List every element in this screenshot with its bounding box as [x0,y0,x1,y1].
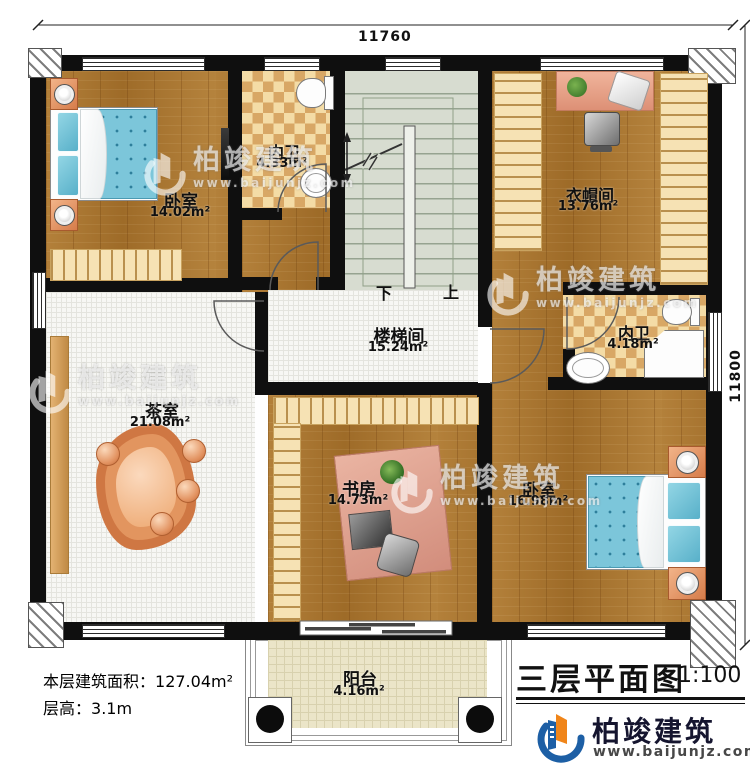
sink-icon [566,352,610,384]
dressing-table [556,71,654,111]
title-underline-thin [516,703,745,704]
room-area-bath2: 4.18m² [607,337,658,352]
wall-tearoom-hall [255,292,268,385]
window-top-cloakroom [540,57,664,71]
column-circle-icon [256,705,284,733]
pillow-icon [667,482,701,520]
wardrobe-cloakroom-right [660,73,708,285]
stool-icon [182,439,206,463]
pillow-icon [57,155,79,196]
plant-icon [567,77,587,97]
nightstand [668,446,706,478]
corridor-floor [492,282,563,390]
floor-plan-canvas: 11760 11800 卧室 14.02m² 内卫 4.33m² 楼梯间 15.… [0,0,750,778]
pillow-icon [57,112,79,152]
dimension-right: 11800 [728,346,744,406]
lamp-icon [676,572,699,595]
bed-bedroom2 [586,474,706,570]
floor-height-value: 3.1m [91,699,132,718]
mirror-stand-icon [590,146,612,152]
hatch-corner-bottom-left [28,602,64,648]
stool-icon [150,512,174,536]
wardrobe-bedroom1 [50,249,182,281]
wall-vestibule-bottom-left [242,277,278,290]
floor-height-label: 层高： [43,699,91,718]
room-area-stairwell: 15.24m² [368,340,428,355]
lamp-icon [54,84,75,105]
column-circle-icon [466,705,494,733]
wall-bedroom1-vestibule [228,71,242,292]
bench-cabinet [50,336,69,574]
dimension-top: 11760 [358,29,412,45]
tv-icon [221,128,229,180]
company-website: www.baijunjz.com [593,744,750,760]
title-underline-thick [516,697,745,700]
pillow-icon [667,525,701,563]
wardrobe-study-left [273,423,301,621]
room-area-bath1: 4.33m² [256,156,307,171]
window-top-bedroom1 [82,57,205,71]
toilet-icon [296,78,326,108]
hatch-corner-top-left [28,48,62,78]
room-area-bedroom2: 16.98m² [508,494,568,509]
wardrobe-study-top [273,397,479,425]
wall-bath1-bottom [242,208,282,220]
floor-area-line: 本层建筑面积：127.04m² [43,668,233,692]
window-bottom-bedroom2 [527,624,666,638]
nightstand [50,199,78,231]
bed-bedroom1 [50,107,158,201]
floor-area-value: 127.04m² [155,672,233,691]
window-left-tearoom [32,272,46,329]
plant-icon [380,460,404,484]
blanket [637,476,664,568]
wall-stair-right [478,65,492,327]
stair-up-label: 上 [443,279,459,303]
wall-study-top [255,382,478,395]
floor-area-label: 本层建筑面积： [43,672,155,691]
room-area-bedroom1: 14.02m² [150,205,210,220]
blanket [80,109,107,199]
nightstand [50,78,78,110]
wall-study-bedroom2 [477,383,492,622]
room-area-study: 14.73m² [328,493,388,508]
plan-scale: 1:100 [678,663,741,688]
room-area-balcony: 4.16m² [333,684,384,699]
window-top-bath1 [264,57,320,71]
sink-icon [300,168,332,198]
plan-title: 三层平面图 [516,654,686,699]
window-bottom-tearoom [82,624,225,638]
hatch-corner-bottom-right [690,600,736,668]
stool-icon [96,442,120,466]
stool-icon [176,479,200,503]
lamp-icon [54,205,75,226]
floor-height-line: 层高：3.1m [43,695,132,719]
window-top-stairwell [385,57,441,71]
company-logo-icon [536,708,586,766]
toilet-icon [662,299,692,325]
mirror-icon [584,112,620,146]
stair-treads [345,93,478,288]
wardrobe-cloakroom-left [494,73,542,251]
nightstand [668,567,706,600]
lamp-icon [676,451,699,474]
room-area-tearoom: 21.08m² [130,415,190,430]
room-area-cloakroom: 13.76m² [558,199,618,214]
balcony-column-left [248,697,292,743]
window-right-bath2 [708,312,722,392]
wall-left [30,55,46,642]
chair-icon [607,70,651,112]
stair-down-label: 下 [376,280,392,304]
balcony-column-right [458,697,502,743]
